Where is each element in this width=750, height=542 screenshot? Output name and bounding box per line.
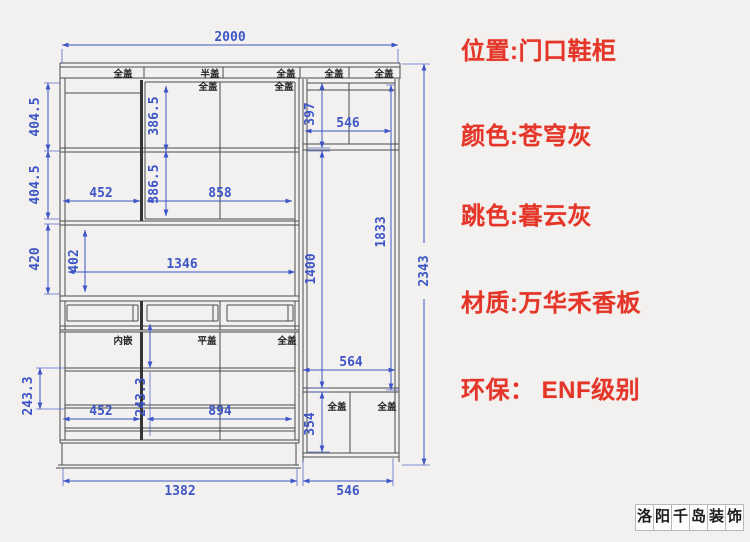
- dim-niche-inner-h: 402: [67, 249, 82, 272]
- watermark-char: 洛: [635, 504, 654, 531]
- dim-right-lower-inner-w: 564: [339, 355, 363, 370]
- cover-label-top-3: 全盖: [275, 68, 296, 80]
- cover-label-lower-1: 内嵌: [113, 335, 133, 347]
- cover-label-bottom-right-1: 全盖: [326, 401, 347, 413]
- dim-base-w-right: 546: [336, 484, 360, 499]
- dim-right-top-cabinet-h: 397: [303, 102, 318, 125]
- cover-label-bottom-right-2: 全盖: [376, 401, 397, 413]
- cover-label-top-2: 半盖: [200, 68, 220, 80]
- note-accent-color: 跳色:暮云灰: [461, 196, 592, 231]
- watermark-char: 岛: [689, 504, 708, 531]
- dim-right-mid-h: 1400: [304, 253, 319, 284]
- cover-label-lower-3: 全盖: [276, 335, 297, 347]
- note-location: 位置:门口鞋柜: [461, 31, 617, 66]
- dim-base-w-left: 1382: [164, 484, 195, 499]
- watermark-char: 阳: [653, 504, 672, 531]
- dimension-extension-lines: [36, 49, 430, 486]
- dim-drawer-w-right: 894: [208, 404, 232, 419]
- shoe-cabinet-technical-drawing-page: 2000 452 858 1346 546 564 452 894 1382 5…: [0, 0, 750, 542]
- cover-label-inner-2: 全盖: [273, 81, 294, 93]
- dim-niche-w: 1346: [166, 257, 197, 272]
- dim-upper-door-w-right: 858: [208, 186, 232, 201]
- dim-left-top-h: 404.5: [28, 97, 43, 136]
- watermark-char: 装: [707, 504, 726, 531]
- note-color: 颜色:苍穹灰: [461, 116, 592, 151]
- dim-right-bottom-cabinet-h: 354: [303, 412, 318, 436]
- cover-label-inner-1: 全盖: [197, 81, 218, 93]
- cover-label-lower-2: 平盖: [197, 335, 217, 347]
- dim-upper-door-h-bottom: 386.5: [147, 164, 162, 203]
- dim-drawer-h-mid: 243.3: [134, 377, 149, 416]
- dim-drawer-w-left: 452: [89, 404, 112, 419]
- cover-label-top-5: 全盖: [373, 68, 394, 80]
- note-material: 材质:万华禾香板: [461, 283, 641, 318]
- dim-right-open-h: 1833: [374, 216, 389, 247]
- cabinet-drawing-canvas: 2000 452 858 1346 546 564 452 894 1382 5…: [0, 0, 750, 542]
- cover-label-top-4: 全盖: [323, 68, 344, 80]
- dim-niche-outer-h: 420: [28, 247, 43, 271]
- dim-upper-door-h-top: 386.5: [147, 96, 162, 135]
- watermark-char: 千: [671, 504, 690, 531]
- dim-total-width: 2000: [214, 30, 245, 45]
- note-eco-grade: 环保： ENF级别: [461, 370, 640, 405]
- dim-drawer-h-left: 243.3: [21, 376, 36, 415]
- dim-right-top-cabinet-w: 546: [336, 116, 360, 131]
- cover-label-top-1: 全盖: [112, 68, 133, 80]
- dim-left-mid-h: 404.5: [28, 165, 43, 204]
- watermark-company: 洛 阳 千 岛 装 饰: [636, 504, 744, 531]
- dim-total-height: 2343: [417, 255, 432, 286]
- watermark-char: 饰: [725, 504, 744, 531]
- dim-upper-door-w-left: 452: [89, 186, 112, 201]
